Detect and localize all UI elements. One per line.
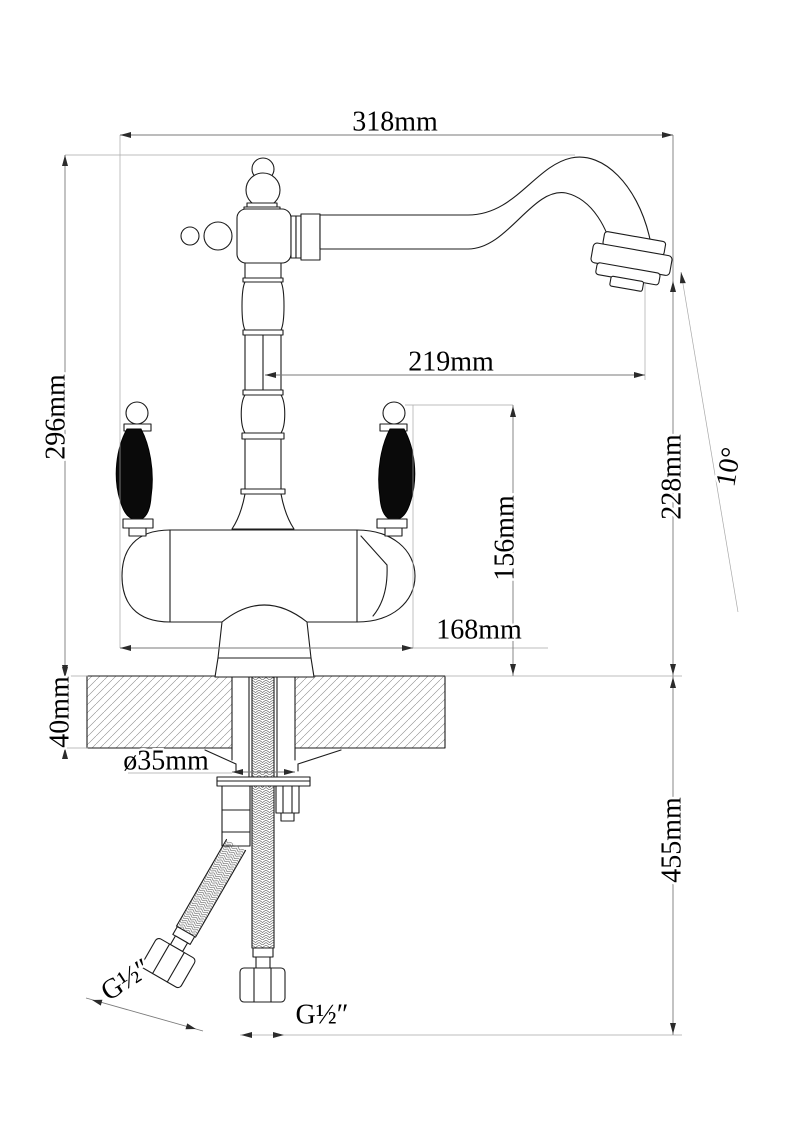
handle-right-lever bbox=[379, 429, 415, 520]
faucet-body bbox=[122, 530, 415, 658]
faucet-base bbox=[215, 658, 314, 677]
hex-nut-bottom bbox=[240, 968, 285, 1002]
base-skirt bbox=[218, 622, 311, 658]
handle-right bbox=[377, 402, 415, 536]
technical-drawing-canvas: 318mm 219mm 168mm ø35mm G½″ 296mm 228mm … bbox=[0, 0, 800, 1131]
faucet-head bbox=[181, 158, 291, 263]
angle-reference-line bbox=[681, 272, 738, 612]
top-finial-ball bbox=[246, 173, 280, 207]
faucet-technical-drawing: 318mm 219mm 168mm ø35mm G½″ 296mm 228mm … bbox=[0, 0, 800, 1131]
dim-40mm-label: 40mm bbox=[45, 676, 76, 748]
handle-left-ball bbox=[126, 402, 148, 424]
dim-10deg-label: 10° bbox=[710, 445, 747, 489]
hose-slanted bbox=[140, 834, 255, 989]
dim-168mm-label: 168mm bbox=[436, 615, 522, 646]
handle-left bbox=[116, 402, 153, 536]
dim-228mm-label: 228mm bbox=[657, 434, 688, 520]
cross-body bbox=[237, 209, 291, 263]
dim-156mm-label: 156mm bbox=[490, 495, 521, 581]
threaded-stud-nut bbox=[276, 786, 299, 813]
spout bbox=[291, 157, 675, 296]
dim-35mm-label: ø35mm bbox=[123, 746, 209, 777]
handle-left-lever bbox=[116, 429, 152, 520]
thread-bottom-label: G½″ bbox=[296, 1000, 349, 1031]
dim-219mm-label: 219mm bbox=[408, 347, 494, 378]
handle-right-ball bbox=[383, 402, 405, 424]
spout-outlet bbox=[587, 230, 675, 296]
dim-318mm-label: 318mm bbox=[352, 107, 438, 138]
dim-296mm-label: 296mm bbox=[41, 374, 72, 460]
hose-connector-left bbox=[222, 786, 250, 846]
dim-line-g12-left bbox=[86, 998, 203, 1031]
left-finial-small-ball bbox=[181, 227, 199, 245]
dim-455mm-label: 455mm bbox=[657, 797, 688, 883]
left-finial-ball bbox=[204, 222, 232, 250]
